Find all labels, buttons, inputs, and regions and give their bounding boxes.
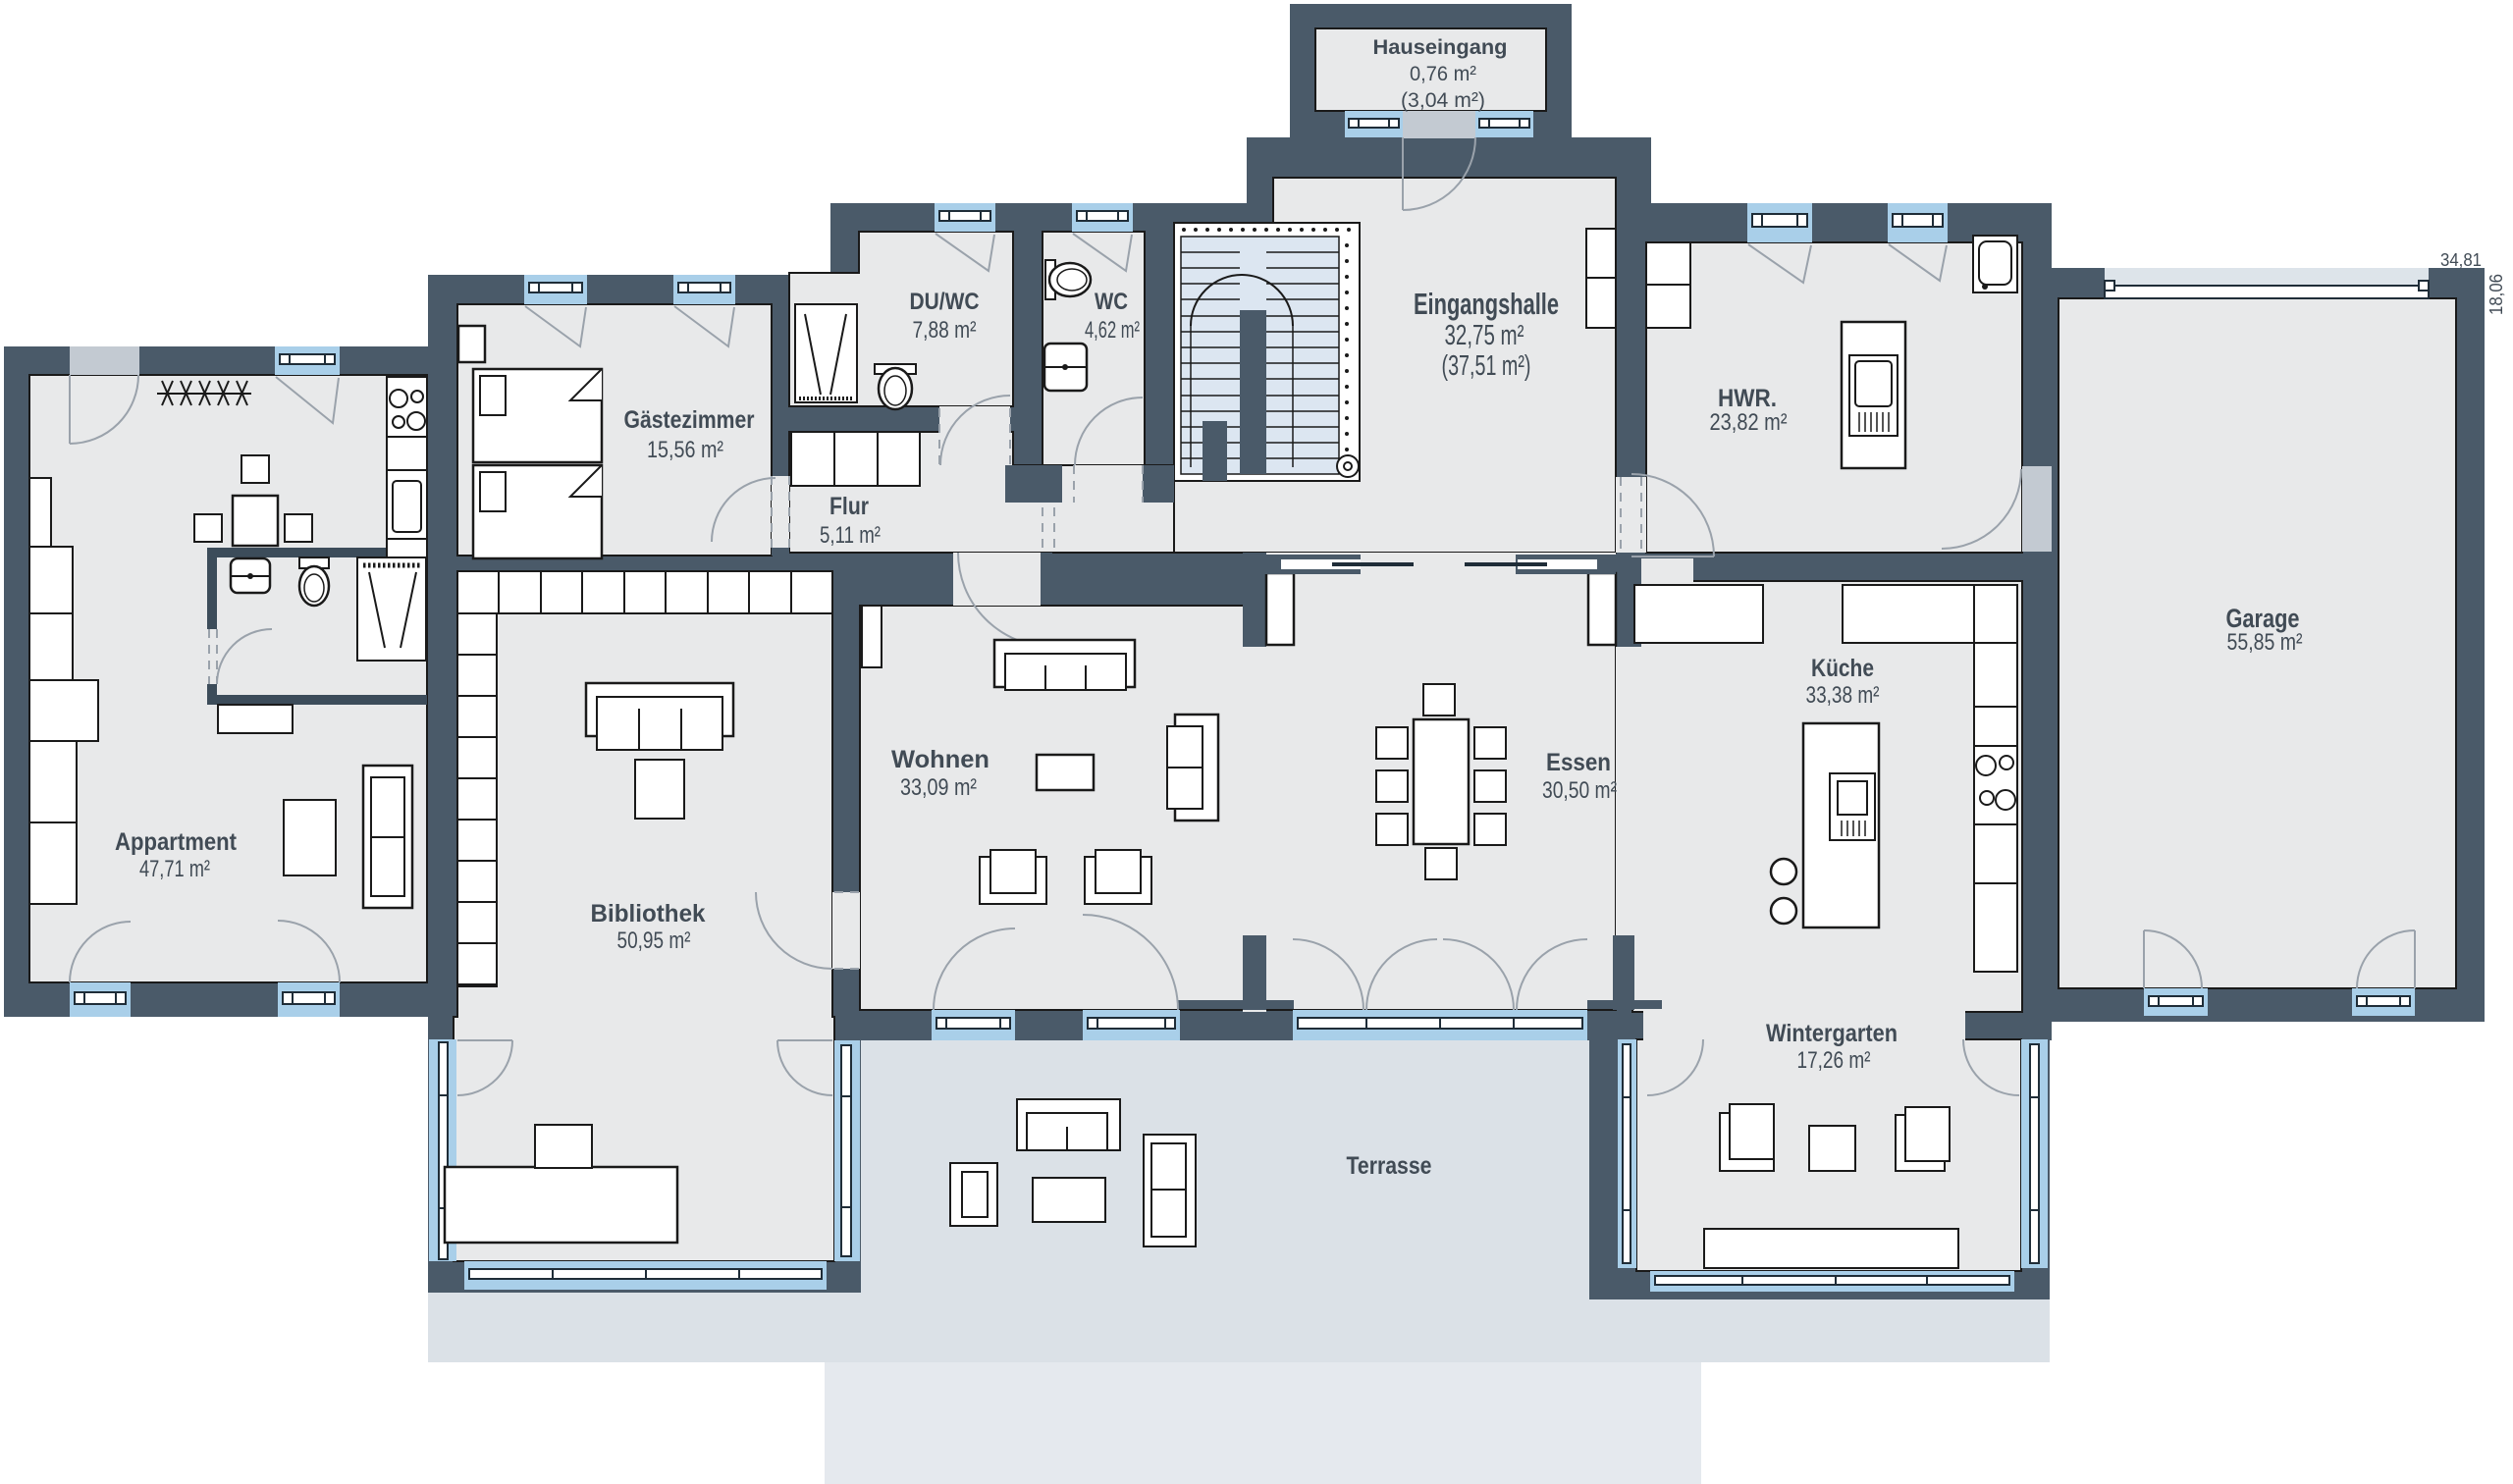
svg-text:(3,04 m²): (3,04 m²): [1401, 89, 1485, 112]
svg-text:32,75 m²: 32,75 m²: [1445, 320, 1524, 351]
svg-text:34,81: 34,81: [2440, 250, 2482, 270]
svg-text:DU/WC: DU/WC: [910, 289, 980, 315]
svg-text:30,50 m²: 30,50 m²: [1542, 777, 1617, 804]
svg-text:Hauseingang: Hauseingang: [1373, 36, 1508, 59]
svg-text:Flur: Flur: [829, 493, 869, 520]
svg-text:Bibliothek: Bibliothek: [591, 900, 706, 927]
svg-text:23,82 m²: 23,82 m²: [1710, 409, 1788, 436]
svg-text:HWR.: HWR.: [1718, 385, 1777, 412]
svg-text:WC: WC: [1095, 289, 1128, 315]
svg-text:17,26 m²: 17,26 m²: [1797, 1047, 1871, 1074]
svg-text:Appartment: Appartment: [115, 828, 238, 856]
svg-text:Wohnen: Wohnen: [891, 746, 989, 773]
svg-text:18,06: 18,06: [2486, 274, 2506, 315]
svg-text:(37,51 m²): (37,51 m²): [1442, 350, 1531, 382]
svg-text:Küche: Küche: [1811, 655, 1874, 682]
svg-text:15,56 m²: 15,56 m²: [647, 437, 723, 463]
svg-text:Wintergarten: Wintergarten: [1766, 1020, 1898, 1047]
svg-text:Terrasse: Terrasse: [1347, 1152, 1432, 1180]
svg-text:0,76 m²: 0,76 m²: [1410, 63, 1476, 85]
svg-text:5,11 m²: 5,11 m²: [820, 522, 881, 549]
svg-text:47,71 m²: 47,71 m²: [139, 856, 210, 882]
svg-text:Essen: Essen: [1546, 749, 1611, 776]
svg-text:4,62 m²: 4,62 m²: [1085, 317, 1140, 344]
svg-text:Eingangshalle: Eingangshalle: [1414, 287, 1559, 321]
svg-text:55,85 m²: 55,85 m²: [2227, 629, 2303, 656]
svg-text:50,95 m²: 50,95 m²: [617, 927, 691, 954]
svg-text:Gästezimmer: Gästezimmer: [624, 406, 755, 434]
svg-text:7,88 m²: 7,88 m²: [913, 317, 977, 344]
svg-text:33,38 m²: 33,38 m²: [1806, 682, 1880, 709]
svg-text:33,09 m²: 33,09 m²: [900, 774, 977, 801]
